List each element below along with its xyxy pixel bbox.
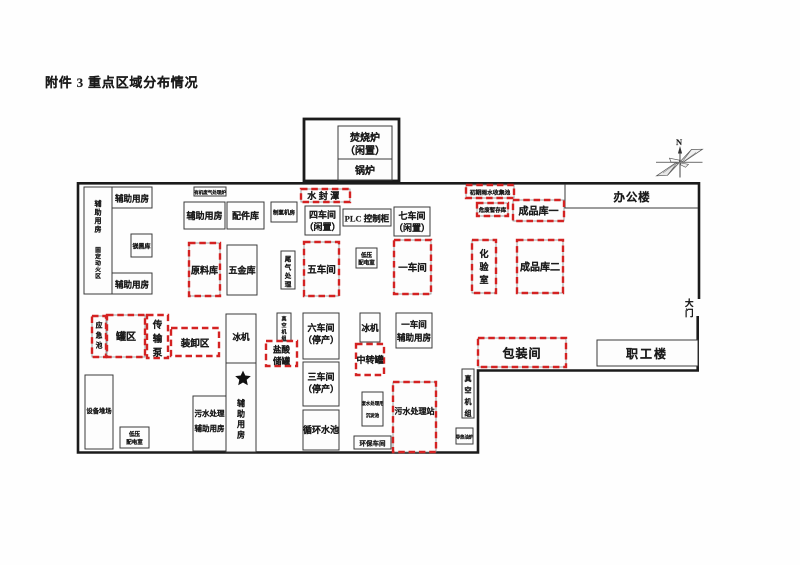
svg-text:辅助用房: 辅助用房 [115, 194, 149, 204]
svg-text:输: 输 [153, 333, 163, 345]
svg-text:七车间: 七车间 [398, 210, 425, 221]
svg-text:沉淀池: 沉淀池 [366, 412, 380, 419]
svg-text:验: 验 [479, 261, 489, 272]
svg-text:污水处理站: 污水处理站 [395, 406, 435, 416]
svg-text:循环水池: 循环水池 [303, 424, 339, 435]
svg-text:导热油炉: 导热油炉 [456, 434, 474, 441]
svg-text:（停产）: （停产） [303, 383, 339, 394]
svg-text:处: 处 [284, 271, 292, 280]
svg-text:焚烧炉: 焚烧炉 [349, 131, 380, 144]
svg-text:气: 气 [284, 263, 292, 272]
svg-text:火: 火 [95, 267, 101, 274]
svg-text:真: 真 [465, 374, 472, 383]
svg-text:废水处理用: 废水处理用 [362, 400, 384, 407]
svg-text:装卸区: 装卸区 [180, 338, 210, 350]
svg-text:辅助用房: 辅助用房 [186, 210, 222, 221]
svg-text:中转罐: 中转罐 [356, 354, 383, 365]
svg-text:室: 室 [479, 274, 488, 285]
svg-text:污水处理: 污水处理 [195, 408, 225, 418]
svg-text:盐酸: 盐酸 [273, 345, 291, 355]
svg-text:职工楼: 职工楼 [626, 346, 668, 361]
svg-text:动: 动 [95, 259, 101, 267]
svg-text:组: 组 [465, 409, 472, 418]
svg-text:（停产）: （停产） [303, 334, 339, 345]
svg-text:初期雨水收集池: 初期雨水收集池 [470, 189, 511, 197]
svg-text:镁黑库: 镁黑库 [132, 243, 150, 251]
svg-text:低压: 低压 [360, 251, 373, 259]
svg-text:辅助用房: 辅助用房 [195, 423, 225, 433]
svg-text:辅: 辅 [237, 398, 245, 408]
svg-text:机: 机 [280, 329, 286, 336]
svg-text:泵: 泵 [152, 348, 163, 359]
svg-text:罐区: 罐区 [115, 330, 136, 343]
svg-text:成品库二: 成品库二 [520, 261, 560, 274]
svg-text:N: N [676, 137, 683, 147]
svg-text:用: 用 [95, 217, 102, 225]
svg-text:急: 急 [96, 331, 103, 340]
svg-text:危废暂存库: 危废暂存库 [479, 206, 507, 214]
svg-text:机: 机 [465, 397, 472, 406]
svg-text:环保车间: 环保车间 [360, 439, 387, 448]
svg-text:房: 房 [237, 430, 245, 440]
svg-text:冰机: 冰机 [232, 332, 250, 342]
svg-text:区: 区 [95, 272, 101, 280]
svg-text:真: 真 [281, 316, 286, 323]
svg-text:一车间: 一车间 [398, 262, 427, 274]
svg-text:附件 3 重点区域分布情况: 附件 3 重点区域分布情况 [45, 75, 198, 90]
svg-text:PLC 控制柜: PLC 控制柜 [345, 214, 390, 224]
svg-text:低压: 低压 [128, 430, 141, 438]
svg-text:配电室: 配电室 [358, 259, 375, 267]
svg-text:包装间: 包装间 [501, 346, 541, 361]
svg-text:固: 固 [95, 246, 101, 254]
svg-text:理: 理 [285, 280, 292, 289]
svg-text:办公楼: 办公楼 [614, 190, 651, 204]
svg-text:制氢机房: 制氢机房 [273, 209, 296, 217]
svg-text:水封潭: 水封潭 [307, 190, 342, 201]
svg-text:配件库: 配件库 [232, 210, 259, 221]
svg-text:应: 应 [96, 321, 103, 330]
svg-text:锅炉: 锅炉 [355, 164, 375, 177]
svg-text:有机废气处理炉: 有机废气处理炉 [194, 189, 226, 196]
svg-text:储罐: 储罐 [272, 356, 291, 366]
svg-text:用: 用 [236, 420, 245, 429]
svg-text:（闲置）: （闲置） [304, 221, 340, 232]
svg-text:冰机: 冰机 [361, 323, 379, 333]
svg-text:尾: 尾 [284, 254, 292, 263]
svg-text:空: 空 [281, 322, 286, 329]
svg-text:原料库: 原料库 [191, 265, 218, 276]
svg-text:配电室: 配电室 [126, 438, 143, 446]
svg-text:五车间: 五车间 [307, 264, 336, 276]
svg-text:池: 池 [96, 341, 103, 350]
svg-text:传: 传 [152, 319, 163, 331]
svg-text:辅: 辅 [95, 199, 102, 208]
svg-text:设备堆场: 设备堆场 [86, 406, 112, 415]
svg-text:助: 助 [237, 409, 245, 419]
svg-text:空: 空 [465, 386, 472, 395]
svg-text:辅助用房: 辅助用房 [397, 333, 431, 343]
svg-text:助: 助 [95, 208, 102, 217]
svg-text:房: 房 [95, 225, 102, 234]
svg-text:一车间: 一车间 [401, 320, 427, 330]
svg-text:定: 定 [94, 253, 101, 261]
svg-text:五金库: 五金库 [228, 265, 255, 276]
svg-text:（闲置）: （闲置） [345, 144, 385, 157]
svg-text:四车间: 四车间 [309, 209, 336, 220]
svg-text:（闲置）: （闲置） [394, 222, 430, 233]
svg-text:大: 大 [685, 298, 694, 308]
svg-text:三车间: 三车间 [307, 371, 334, 382]
svg-text:辅助用房: 辅助用房 [115, 280, 149, 290]
svg-text:成品库一: 成品库一 [519, 205, 559, 218]
svg-text:化: 化 [479, 248, 488, 259]
svg-text:门: 门 [685, 308, 694, 318]
svg-text:六车间: 六车间 [307, 322, 334, 333]
